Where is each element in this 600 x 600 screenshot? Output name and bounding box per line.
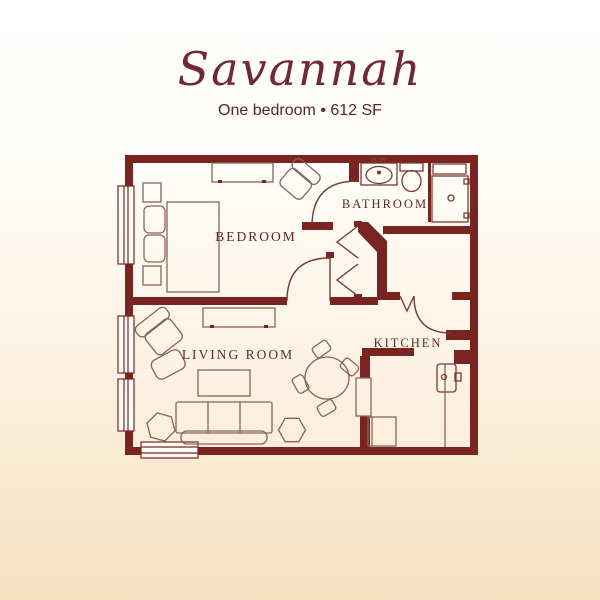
living-room-window-1 [118,316,134,373]
floor-plan-page: Savannah One bedroom • 612 SF [0,0,600,600]
living-room-label: LIVING ROOM [182,347,294,362]
floor-plan-drawing: BEDROOM BATHROOM LIVING ROOM KITCHEN [0,0,600,600]
living-room-window-2 [118,379,134,431]
bedroom-label: BEDROOM [215,229,297,244]
kitchen-label: KITCHEN [374,336,443,350]
bedroom-window [118,186,134,264]
bathroom-label: BATHROOM [342,197,428,211]
